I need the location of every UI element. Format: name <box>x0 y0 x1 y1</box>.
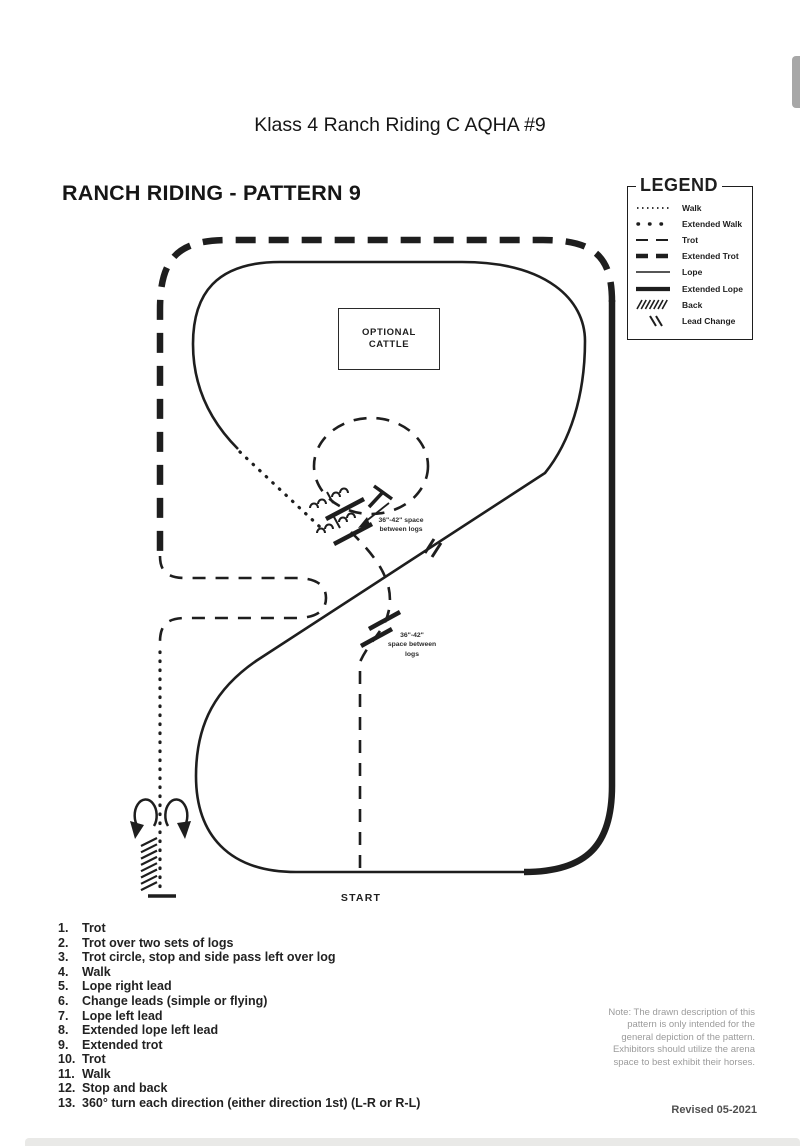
instruction-text: Walk <box>82 1067 111 1081</box>
note-line: Exhibitors should utilize the arena <box>583 1044 755 1056</box>
walk-dotted-line-icon <box>635 202 673 214</box>
extended-trot-path <box>160 240 612 555</box>
legend-row-walk: Walk <box>628 200 752 216</box>
trot-zigzag-path <box>160 556 326 650</box>
instruction-item: 7.Lope left lead <box>58 1008 420 1023</box>
log-spacing-note-lower: 36"-42" space between logs <box>382 631 442 659</box>
turn-right-arrowhead <box>177 821 191 839</box>
instruction-item: 12.Stop and back <box>58 1081 420 1096</box>
log-note-line: between logs <box>370 525 432 534</box>
instruction-number: 3. <box>58 950 82 964</box>
trot-dashed-line-icon <box>635 234 673 246</box>
instruction-item: 1.Trot <box>58 921 420 936</box>
instruction-item: 8.Extended lope left lead <box>58 1023 420 1038</box>
legend-label: Extended Walk <box>682 219 742 229</box>
turn-left-arrowhead <box>130 821 144 839</box>
extended-lope-path <box>524 300 612 872</box>
legend-row-lope: Lope <box>628 264 752 280</box>
legend-row-extended-trot: Extended Trot <box>628 248 752 264</box>
legend-label: Lead Change <box>682 316 735 326</box>
legend-row-extended-walk: Extended Walk <box>628 216 752 232</box>
back-hatch-marks <box>141 838 157 890</box>
instruction-number: 2. <box>58 936 82 950</box>
walk-diagonal-path <box>240 452 320 527</box>
legend-label: Back <box>682 300 702 310</box>
instruction-number: 9. <box>58 1038 82 1052</box>
instruction-text: Lope right lead <box>82 979 172 993</box>
instruction-text: Lope left lead <box>82 1009 163 1023</box>
trot-center-path <box>351 532 390 868</box>
instruction-item: 9.Extended trot <box>58 1037 420 1052</box>
legend-row-lead-change: Lead Change <box>628 313 752 329</box>
note-line: general depiction of the pattern. <box>583 1032 755 1044</box>
note-line: pattern is only intended for the <box>583 1019 755 1031</box>
instruction-item: 6.Change leads (simple or flying) <box>58 994 420 1009</box>
instruction-text: Stop and back <box>82 1081 167 1095</box>
instruction-item: 3.Trot circle, stop and side pass left o… <box>58 950 420 965</box>
instruction-item: 2.Trot over two sets of logs <box>58 936 420 951</box>
revised-date: Revised 05-2021 <box>665 1104 757 1116</box>
extended-walk-dots-icon <box>635 218 673 230</box>
note-line: space to best exhibit their horses. <box>583 1057 755 1069</box>
disclaimer-note: Note: The drawn description of this patt… <box>583 1007 755 1069</box>
legend-row-back: Back <box>628 297 752 313</box>
instruction-number: 5. <box>58 979 82 993</box>
extended-lope-thick-solid-icon <box>635 283 673 295</box>
legend-title: LEGEND <box>636 175 722 196</box>
instruction-item: 11.Walk <box>58 1066 420 1081</box>
optional-cattle-line1: OPTIONAL <box>362 327 416 340</box>
instruction-number: 6. <box>58 994 82 1008</box>
instruction-number: 4. <box>58 965 82 979</box>
scrollbar-thumb[interactable] <box>792 56 800 108</box>
optional-cattle-box: OPTIONAL CATTLE <box>338 308 440 370</box>
instruction-item: 4.Walk <box>58 965 420 980</box>
start-label: START <box>330 892 392 904</box>
log-note-line: 36"-42" space <box>370 516 432 525</box>
instruction-text: Extended trot <box>82 1038 163 1052</box>
instruction-text: Walk <box>82 965 111 979</box>
lope-solid-line-icon <box>635 266 673 278</box>
back-hatch-icon <box>635 298 673 311</box>
instruction-number: 13. <box>58 1096 82 1110</box>
instruction-text: Trot circle, stop and side pass left ove… <box>82 950 336 964</box>
next-page-edge <box>25 1138 800 1146</box>
pattern-sheet-page: { "page": { "title": "Klass 4 Ranch Ridi… <box>0 0 800 1144</box>
legend-row-extended-lope: Extended Lope <box>628 280 752 296</box>
turn-left-arrow-loop <box>135 800 157 827</box>
lead-change-double-slash-icon <box>635 314 673 328</box>
instruction-text: Trot <box>82 921 106 935</box>
instruction-item: 10.Trot <box>58 1052 420 1067</box>
instruction-number: 10. <box>58 1052 82 1066</box>
instruction-text: Trot <box>82 1052 106 1066</box>
instruction-text: Extended lope left lead <box>82 1023 218 1037</box>
optional-cattle-line2: CATTLE <box>369 339 409 352</box>
instruction-number: 7. <box>58 1009 82 1023</box>
instruction-number: 11. <box>58 1067 82 1081</box>
extended-trot-thick-dashed-icon <box>635 250 673 262</box>
legend-label: Walk <box>682 203 702 213</box>
instruction-text: Change leads (simple or flying) <box>82 994 267 1008</box>
instruction-text: Trot over two sets of logs <box>82 936 233 950</box>
legend-label: Extended Lope <box>682 284 743 294</box>
log-note-line: logs <box>382 650 442 659</box>
legend-label: Trot <box>682 235 698 245</box>
legend-label: Lope <box>682 267 702 277</box>
legend-rows: Walk Extended Walk Trot Extended Trot Lo… <box>628 200 752 329</box>
log-spacing-note-upper: 36"-42" space between logs <box>370 516 432 535</box>
instruction-number: 1. <box>58 921 82 935</box>
instruction-number: 12. <box>58 1081 82 1095</box>
instruction-list: 1.Trot 2.Trot over two sets of logs 3.Tr… <box>58 921 420 1110</box>
legend-label: Extended Trot <box>682 251 739 261</box>
note-line: Note: The drawn description of this <box>583 1007 755 1019</box>
hoofprint-marks <box>310 489 355 534</box>
instruction-item: 13.360° turn each direction (either dire… <box>58 1096 420 1111</box>
instruction-number: 8. <box>58 1023 82 1037</box>
log-note-line: space between <box>382 640 442 649</box>
instruction-item: 5.Lope right lead <box>58 979 420 994</box>
legend-row-trot: Trot <box>628 232 752 248</box>
log-note-line: 36"-42" <box>382 631 442 640</box>
legend-box: LEGEND Walk Extended Walk Trot Extended … <box>627 186 753 340</box>
instruction-text: 360° turn each direction (either directi… <box>82 1096 420 1110</box>
